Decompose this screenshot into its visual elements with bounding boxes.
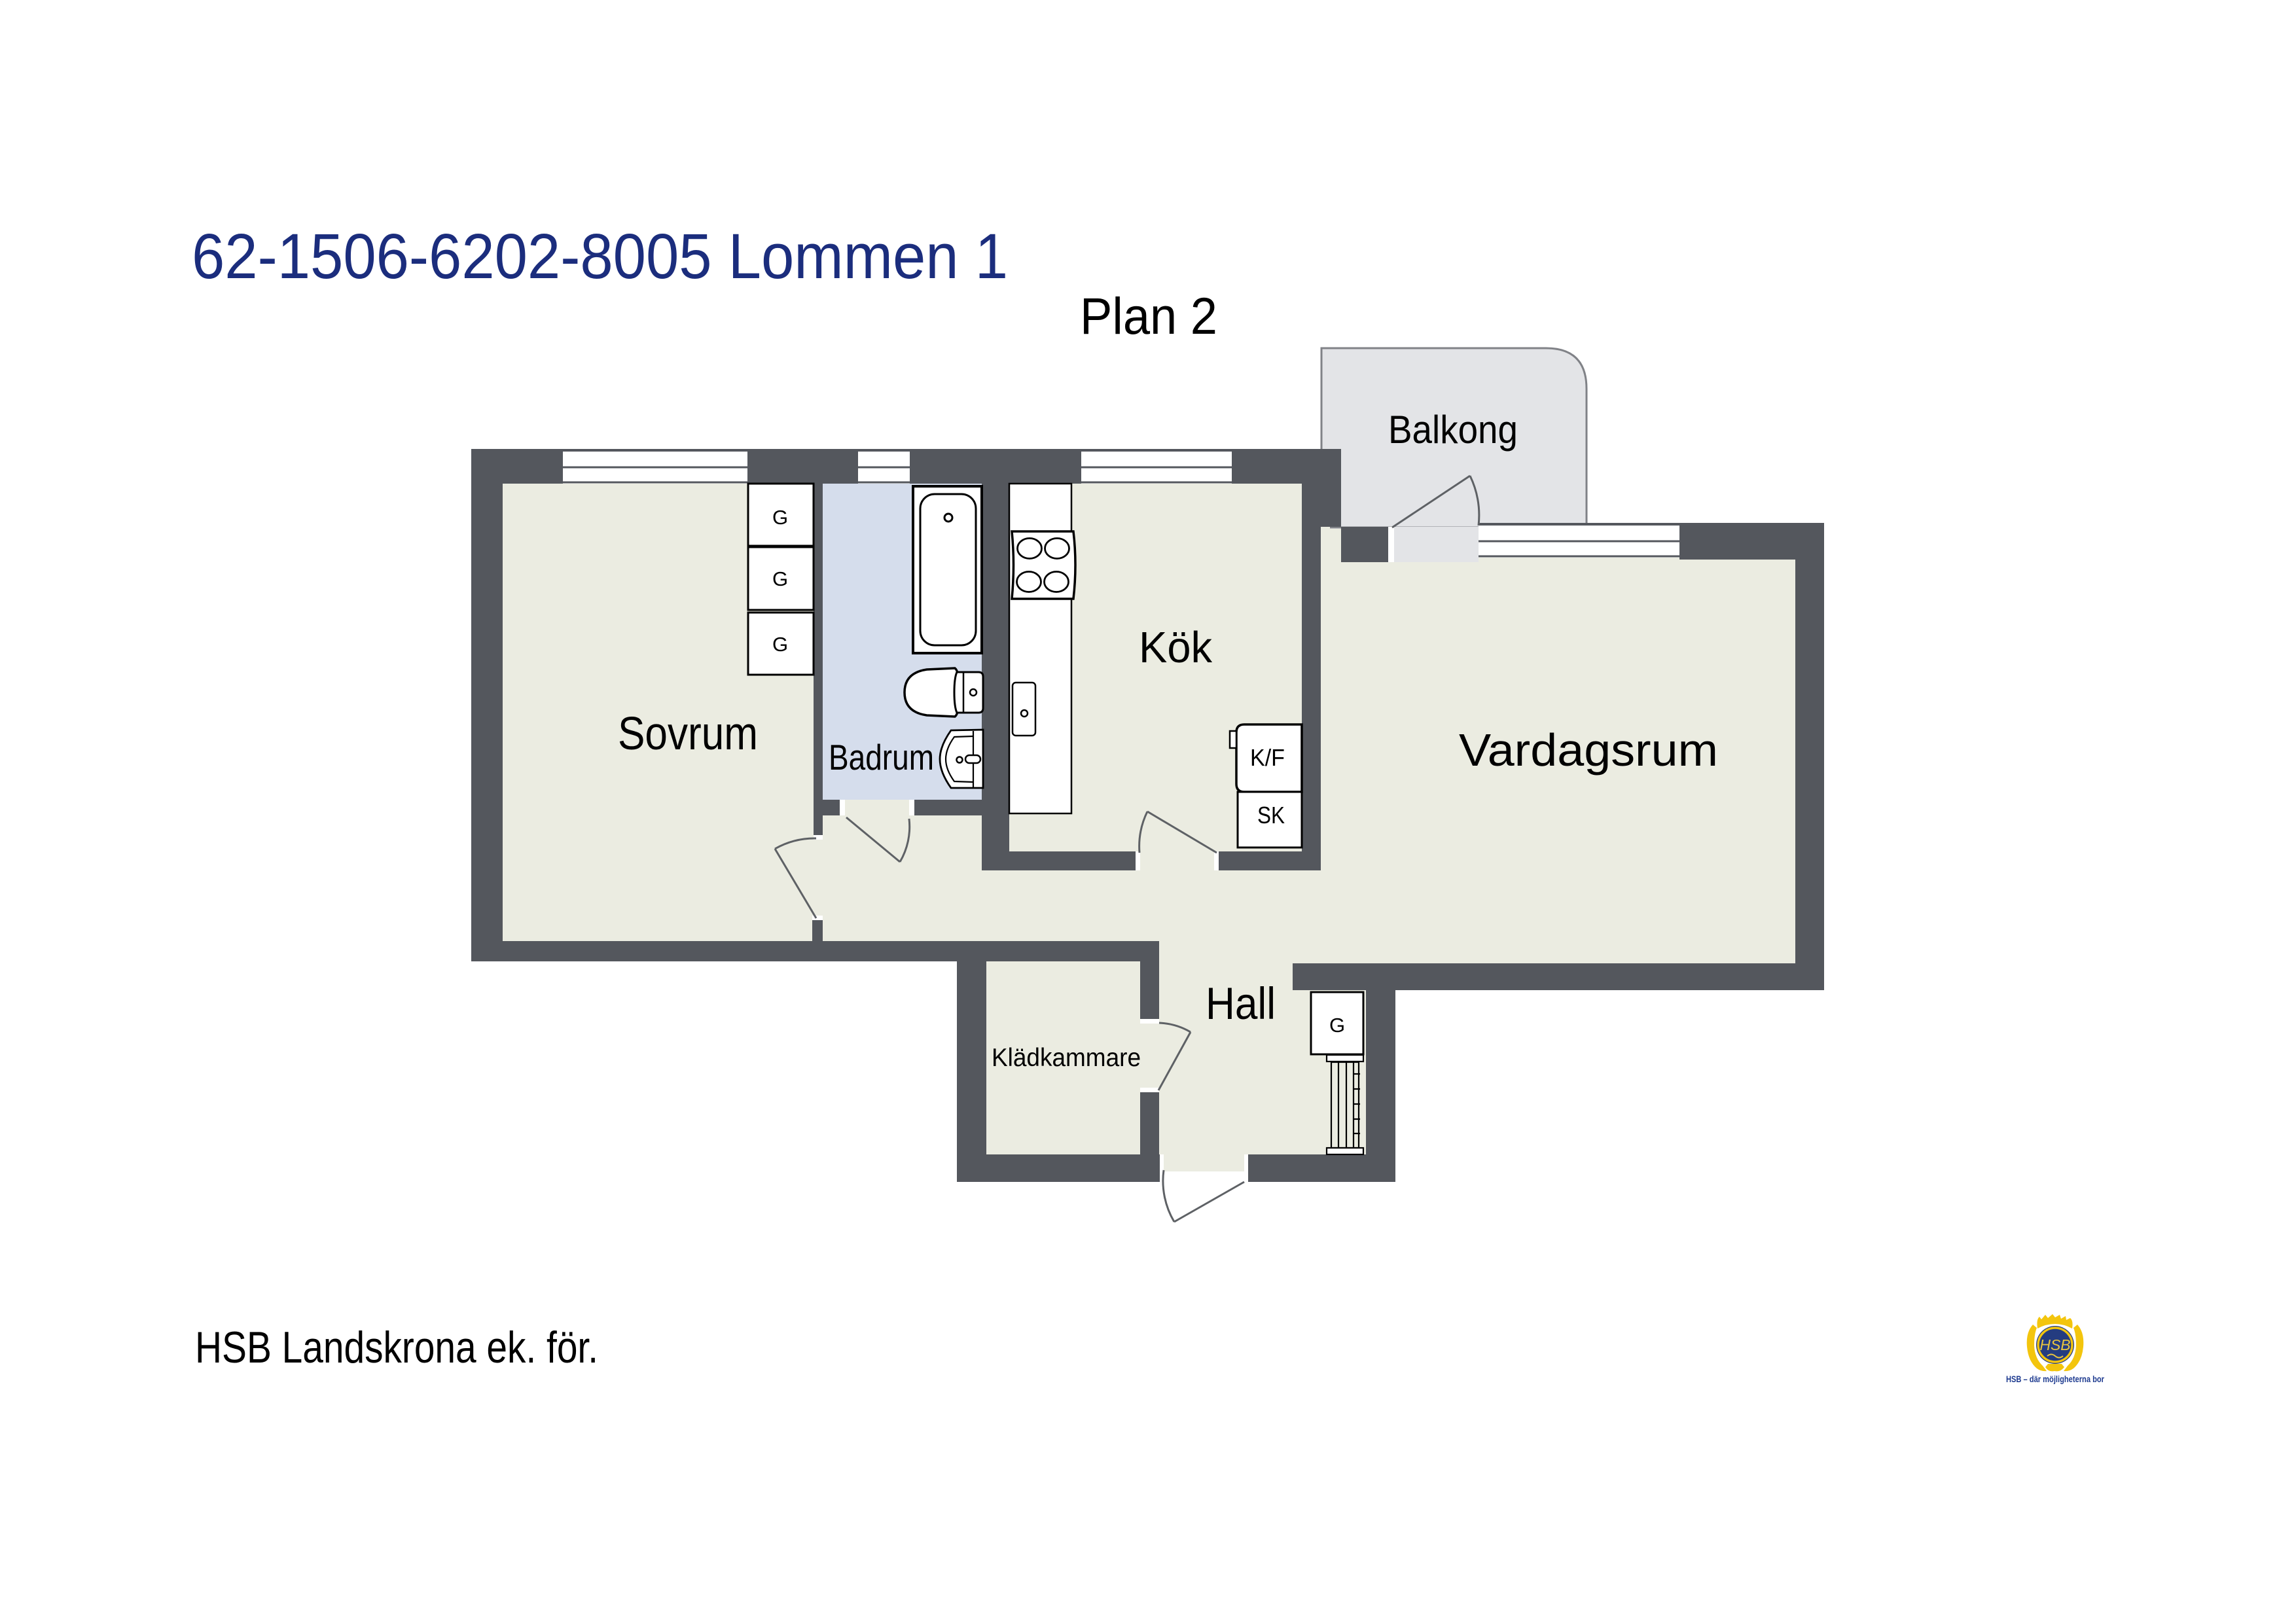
svg-text:HSB Landskrona ek. för.: HSB Landskrona ek. för. <box>195 1323 598 1372</box>
svg-text:HSB – där möjligheterna bor: HSB – där möjligheterna bor <box>2006 1374 2104 1384</box>
svg-text:Hall: Hall <box>1206 978 1276 1029</box>
svg-text:G: G <box>772 633 788 656</box>
svg-text:Balkong: Balkong <box>1388 408 1518 452</box>
svg-text:G: G <box>772 567 788 590</box>
svg-text:Badrum: Badrum <box>829 737 934 777</box>
svg-text:SK: SK <box>1257 802 1285 829</box>
svg-text:Klädkammare: Klädkammare <box>992 1044 1141 1072</box>
svg-text:62-1506-6202-8005 Lommen 1: 62-1506-6202-8005 Lommen 1 <box>192 221 1008 292</box>
svg-text:HSB: HSB <box>2039 1336 2070 1353</box>
svg-text:Vardagsrum: Vardagsrum <box>1459 724 1718 776</box>
svg-text:G: G <box>772 506 788 529</box>
svg-text:Sovrum: Sovrum <box>618 708 758 760</box>
svg-text:G: G <box>1329 1014 1345 1037</box>
svg-text:Kök: Kök <box>1139 623 1212 672</box>
svg-text:K/F: K/F <box>1250 744 1285 771</box>
svg-text:Plan 2: Plan 2 <box>1080 287 1217 345</box>
